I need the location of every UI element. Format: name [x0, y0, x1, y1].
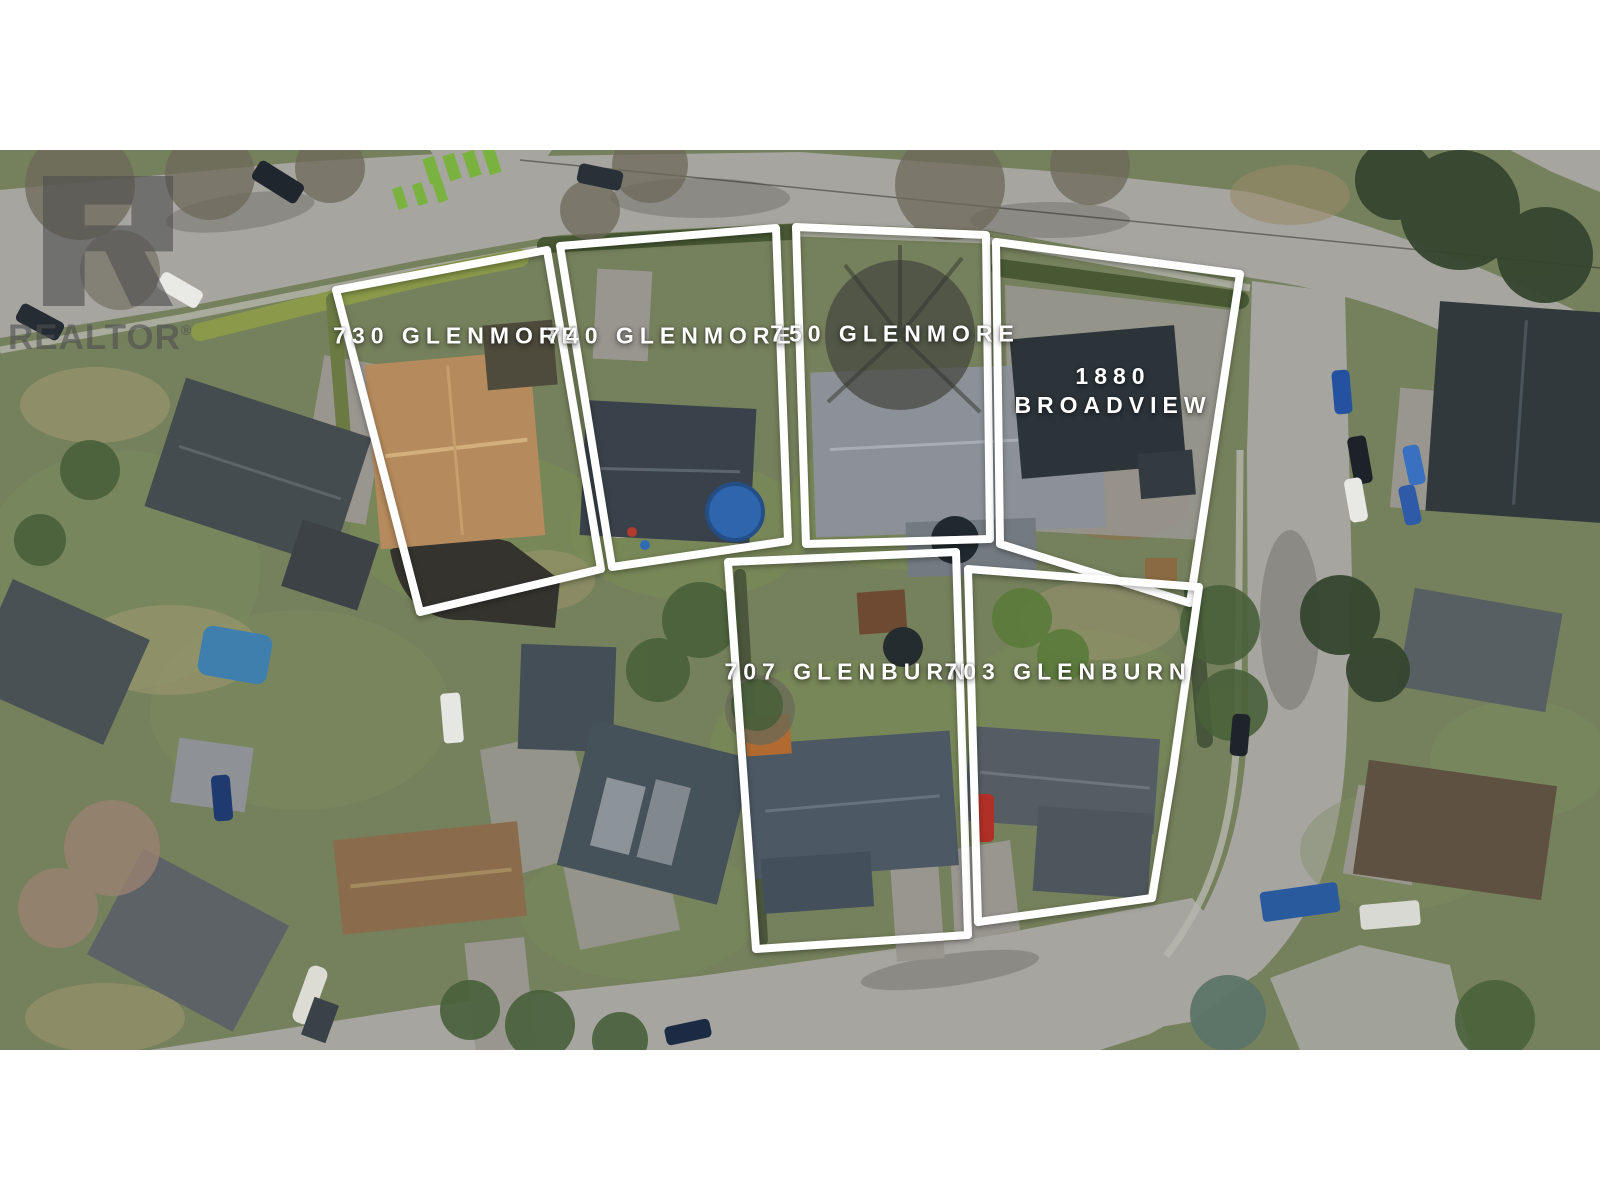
parcel-label-line: BROADVIEW — [1014, 391, 1211, 420]
house-roof — [170, 738, 253, 813]
realtor-r-logo-icon — [28, 176, 188, 306]
car — [1229, 713, 1251, 756]
house-roof — [1397, 588, 1562, 713]
parcel-label-line: 1880 — [1014, 362, 1211, 391]
parcel-label-703-glenburn: 703 GLENBURN — [944, 659, 1191, 686]
car — [211, 774, 234, 821]
bottom-right-driveway-area — [1270, 945, 1470, 1050]
parcel-label-707-glenburn: 707 GLENBURN — [724, 659, 971, 686]
top-right-road-stub — [1510, 150, 1600, 192]
realtor-watermark: REALTOR® — [8, 176, 192, 355]
parcel-label-1880-broadview: 1880 BROADVIEW — [1014, 362, 1211, 420]
parcel-label-750-glenmore: 750 GLENMORE — [770, 321, 1020, 348]
real-estate-aerial-listing-image: 730 GLENMORE 740 GLENMORE 750 GLENMORE 1… — [0, 0, 1600, 1200]
parcel-label-740-glenmore: 740 GLENMORE — [547, 323, 797, 350]
house-roof — [1425, 301, 1600, 523]
registered-trademark-symbol: ® — [181, 322, 192, 338]
trampoline-740 — [707, 484, 763, 540]
realtor-brand-text: REALTOR — [8, 318, 181, 357]
blue-spruce-tree — [1190, 975, 1266, 1050]
toy — [627, 527, 637, 537]
car — [1331, 369, 1353, 414]
toy — [640, 540, 650, 550]
realtor-wordmark: REALTOR® — [8, 320, 192, 355]
car — [1346, 435, 1373, 486]
white-trailer — [1359, 900, 1421, 930]
parcel-label-730-glenmore: 730 GLENMORE — [333, 323, 583, 350]
house-roof-tan — [333, 821, 527, 935]
aerial-photo: 730 GLENMORE 740 GLENMORE 750 GLENMORE 1… — [0, 150, 1600, 1050]
aerial-scene — [0, 150, 1600, 1050]
